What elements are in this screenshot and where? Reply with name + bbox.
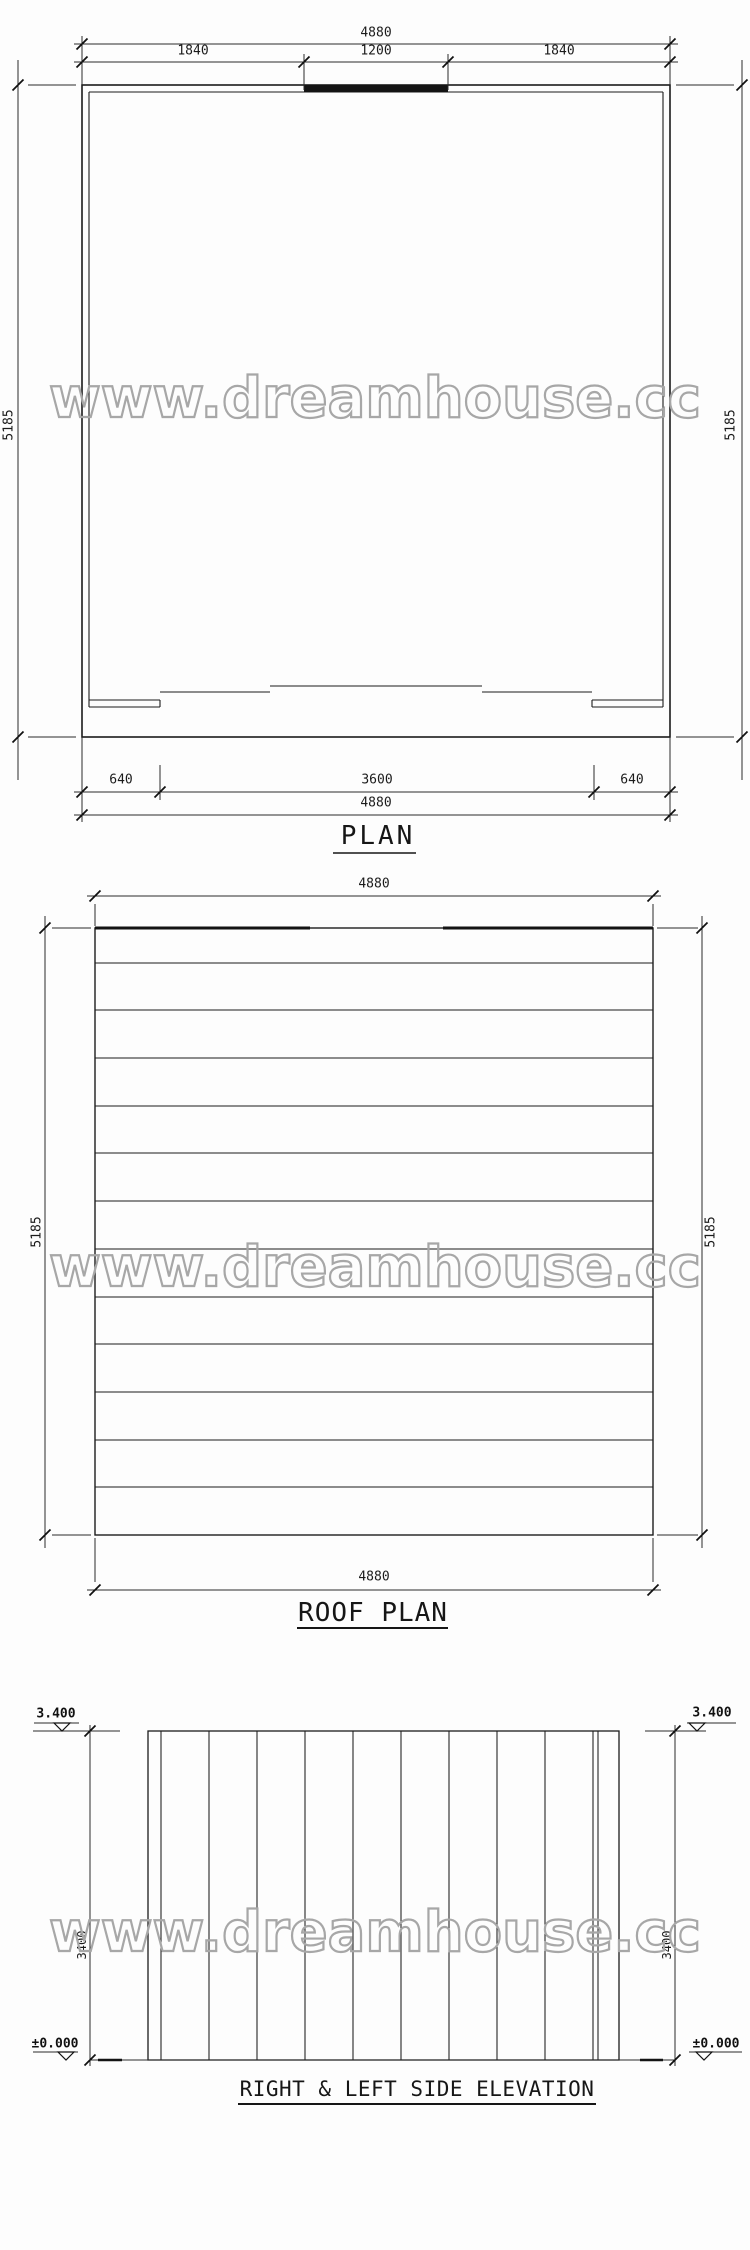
elevation-dimensions	[33, 1723, 742, 2066]
plan-view	[13, 36, 748, 853]
plan-title: PLAN	[341, 821, 416, 851]
roof-panel-seams	[95, 963, 653, 1487]
watermark-roof: www.dreamhouse.cc	[28, 1240, 722, 1296]
plan-dim-bottom-seg1: 640	[109, 773, 132, 788]
watermark-plan: www.dreamhouse.cc	[28, 371, 722, 427]
plan-lintel	[304, 85, 448, 92]
plan-dim-bottom-seg3: 640	[620, 773, 643, 788]
elevation-body	[148, 1731, 619, 2060]
plan-dim-top-seg3: 1840	[543, 44, 574, 59]
roof-title: ROOF PLAN	[298, 1598, 448, 1628]
plan-dim-bottom-seg2: 3600	[361, 773, 392, 788]
roof-dim-top: 4880	[358, 877, 389, 892]
level-triangles	[54, 1723, 712, 2060]
plan-dim-top-seg2: 1200	[360, 44, 391, 59]
roof-outline	[95, 928, 653, 1535]
plan-dim-side-right: 5185	[724, 409, 739, 440]
plan-dim-top-overall: 4880	[360, 26, 391, 41]
elevation-plank-seams	[161, 1731, 598, 2060]
watermark-elevation: www.dreamhouse.cc	[28, 1905, 722, 1961]
elevation-level-top-right: 3.400	[692, 1706, 731, 1721]
elevation-dim-ticks	[85, 1726, 681, 2066]
elevation-level-ground-right: ±0.000	[693, 2037, 740, 2052]
plan-step-lines	[160, 686, 592, 692]
plan-dim-top-seg1: 1840	[177, 44, 208, 59]
elevation-level-ground-left: ±0.000	[32, 2037, 79, 2052]
elevation-level-top-left: 3.400	[36, 1707, 75, 1722]
roof-dim-bottom: 4880	[358, 1570, 389, 1585]
plan-dim-bottom-overall: 4880	[360, 796, 391, 811]
plan-dim-side-left: 5185	[2, 409, 17, 440]
blueprint-sheet: 4880 1840 1200 1840 5185 5185 640 3600 6…	[0, 0, 750, 2250]
elevation-title: RIGHT & LEFT SIDE ELEVATION	[240, 2077, 595, 2101]
